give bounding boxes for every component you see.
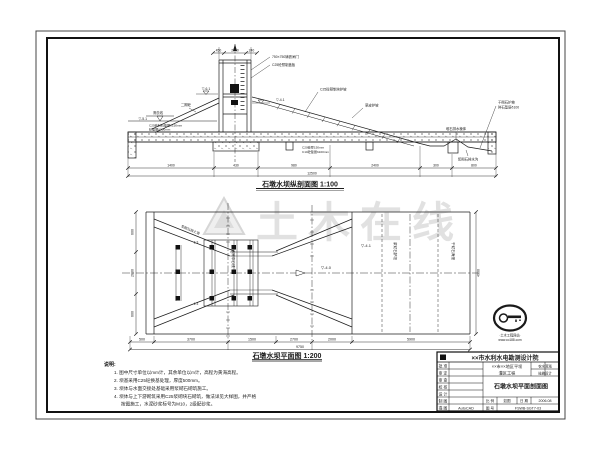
note-line: 按图施工，水泥砂浆标号为M10，2级配砂浆。 bbox=[121, 401, 215, 408]
tb-date-value: 2006.08 bbox=[539, 399, 552, 403]
notes: 说明: 1. 图中尺寸单位以mm计，其余单位以m计，高程为黄海高程。 2. 坝基… bbox=[104, 361, 257, 408]
label-slope-precast: C25砼预制块护坡 bbox=[320, 87, 347, 92]
tb-row-label: 设 计 bbox=[439, 392, 448, 397]
dim-label: 1400 bbox=[167, 164, 175, 168]
tb-row-label: 审 查 bbox=[439, 378, 448, 383]
watermark: 土木在线 bbox=[204, 198, 464, 246]
tb-date-label: 日 期 bbox=[520, 398, 529, 403]
dim-label: 4900 bbox=[477, 269, 481, 277]
tb-project-1: ××市××地区平坝 bbox=[492, 363, 523, 370]
note-line: 1. 图中尺寸单位以mm计，其余单位以m计，高程为黄海高程。 bbox=[114, 369, 241, 376]
slope-label: 1:3 bbox=[194, 302, 199, 306]
dim-label: 240 bbox=[249, 49, 255, 53]
tb-no-value: FSWB-SGT7-03 bbox=[515, 406, 541, 410]
label-base-1: C20砼厚150mm bbox=[302, 145, 325, 150]
dim-label: 2400 bbox=[371, 164, 379, 168]
label-base-2: C10砼垫层δ100mm bbox=[302, 149, 329, 154]
dim-total: 12500 bbox=[307, 172, 317, 176]
tb-project-2: 灌区工程 bbox=[499, 369, 517, 376]
note-line: 3. 坝体与水面交接处基础采用浆砌石砌筑施工。 bbox=[114, 385, 211, 392]
title-block-texts: ××市水利水电勘测设计院 批 准 审 定 审 查 校 核 设 计 制 图 描 图… bbox=[439, 354, 553, 410]
label-riprap: 干砌石海漫 bbox=[451, 242, 456, 260]
dim-label: 2600 bbox=[131, 269, 135, 277]
tb-row-label: 描 图 bbox=[439, 405, 448, 410]
label-gate-axis: 进水闸中心线 bbox=[231, 246, 236, 268]
dim-label: 450 bbox=[216, 49, 222, 53]
section-view bbox=[126, 44, 498, 190]
slope-label: 1:3 bbox=[194, 241, 199, 245]
stamp-caption: ·土木工程网站· bbox=[499, 333, 520, 338]
stamp-url: www.co188.com bbox=[498, 338, 522, 342]
plan-caption: 石墩水坝平面图 1:200 bbox=[252, 351, 322, 360]
dim-label: 800 bbox=[471, 164, 477, 168]
watermark-text: 土木在线 bbox=[256, 199, 464, 246]
dim-label: 2000 bbox=[328, 338, 336, 342]
label-apron: 浆砌石护坦 bbox=[393, 242, 398, 260]
tb-row-label: 批 准 bbox=[439, 364, 448, 369]
dim-label: 3700 bbox=[187, 338, 195, 342]
label-slope-grass: 草皮护坡 bbox=[365, 103, 379, 108]
tb-autocad: AutoCAD bbox=[458, 406, 474, 410]
tb-drawing-title: 石墩水坝平面剖面图 bbox=[493, 383, 548, 391]
dim-label: 2700 bbox=[290, 338, 298, 342]
dim-label: 430 bbox=[233, 164, 239, 168]
tb-stage-top: 农水灌溉 bbox=[538, 364, 552, 369]
watermark-stamp: ·土木工程网站· www.co188.com bbox=[494, 306, 526, 343]
elev-center: ▽-4.0 bbox=[321, 265, 332, 270]
dim-label: 300 bbox=[433, 164, 439, 168]
label-gate-cover: C25砼预制盖板 bbox=[272, 62, 296, 67]
dim-total: 9750 bbox=[296, 345, 304, 349]
elev-crest: ▽-6.1 bbox=[202, 87, 211, 91]
institute-name: ××市水利水电勘测设计院 bbox=[471, 354, 538, 362]
label-dredge: 清淤线 bbox=[153, 110, 164, 115]
cad-sheet-svg: 450 2850 240 750×750铸铁闸门 C25砼预制盖板 二期砼 清淤… bbox=[0, 0, 600, 450]
tb-row-label: 制 图 bbox=[439, 399, 448, 404]
tb-row-label: 校 核 bbox=[439, 385, 448, 390]
tb-scale-value: 如图 bbox=[503, 398, 511, 403]
dim-label: 1500 bbox=[248, 338, 256, 342]
section-caption: 石墩水坝纵剖面图 1:100 bbox=[261, 180, 338, 189]
note-line: 4. 坝体与上下游砌筑采用C25浆砌块石砌筑，做法详见大样图，并严格 bbox=[114, 393, 257, 400]
label-right-far-2: 碎石垫层δ100 bbox=[498, 105, 519, 110]
dim-label: 980 bbox=[291, 164, 297, 168]
notes-title: 说明: bbox=[104, 361, 116, 368]
label-bed-2: 砂垫层δ200mm bbox=[149, 127, 171, 132]
label-gate-size: 750×750铸铁闸门 bbox=[272, 54, 299, 59]
label-drain-prism: 堆石排水棱体 bbox=[446, 126, 467, 131]
gate-piers bbox=[176, 245, 253, 301]
dim-label: 5900 bbox=[407, 338, 415, 342]
tb-stage-bottom: 技施设计 bbox=[538, 370, 552, 375]
label-stage2: 二期砼 bbox=[181, 102, 192, 107]
label-drain-ditch: 浆砌石排水沟 bbox=[458, 157, 479, 162]
dim-label: 600 bbox=[131, 311, 135, 317]
tb-scale-label: 比 例 bbox=[486, 398, 495, 403]
elev-apron: ▽-4.1 bbox=[361, 243, 372, 248]
elev-left: ▽-5.1 bbox=[139, 117, 148, 121]
elev-right: ▽-4.1 bbox=[276, 98, 285, 102]
label-right-far-1: 干砌石护坡 bbox=[498, 100, 516, 105]
dim-label: 500 bbox=[139, 338, 145, 342]
tb-no-label: 图 号 bbox=[486, 405, 495, 410]
dim-label: 2850 bbox=[231, 49, 239, 53]
institute-logo bbox=[440, 355, 446, 361]
dim-label: 600 bbox=[131, 229, 135, 235]
note-line: 2. 坝基采用C25砼换基处理，厚度500mm。 bbox=[114, 377, 203, 384]
tb-row-label: 审 定 bbox=[439, 371, 448, 376]
cad-drawing-sheet: 450 2850 240 750×750铸铁闸门 C25砼预制盖板 二期砼 清淤… bbox=[0, 0, 600, 450]
section-view-labels: 450 2850 240 750×750铸铁闸门 C25砼预制盖板 二期砼 清淤… bbox=[139, 49, 520, 189]
